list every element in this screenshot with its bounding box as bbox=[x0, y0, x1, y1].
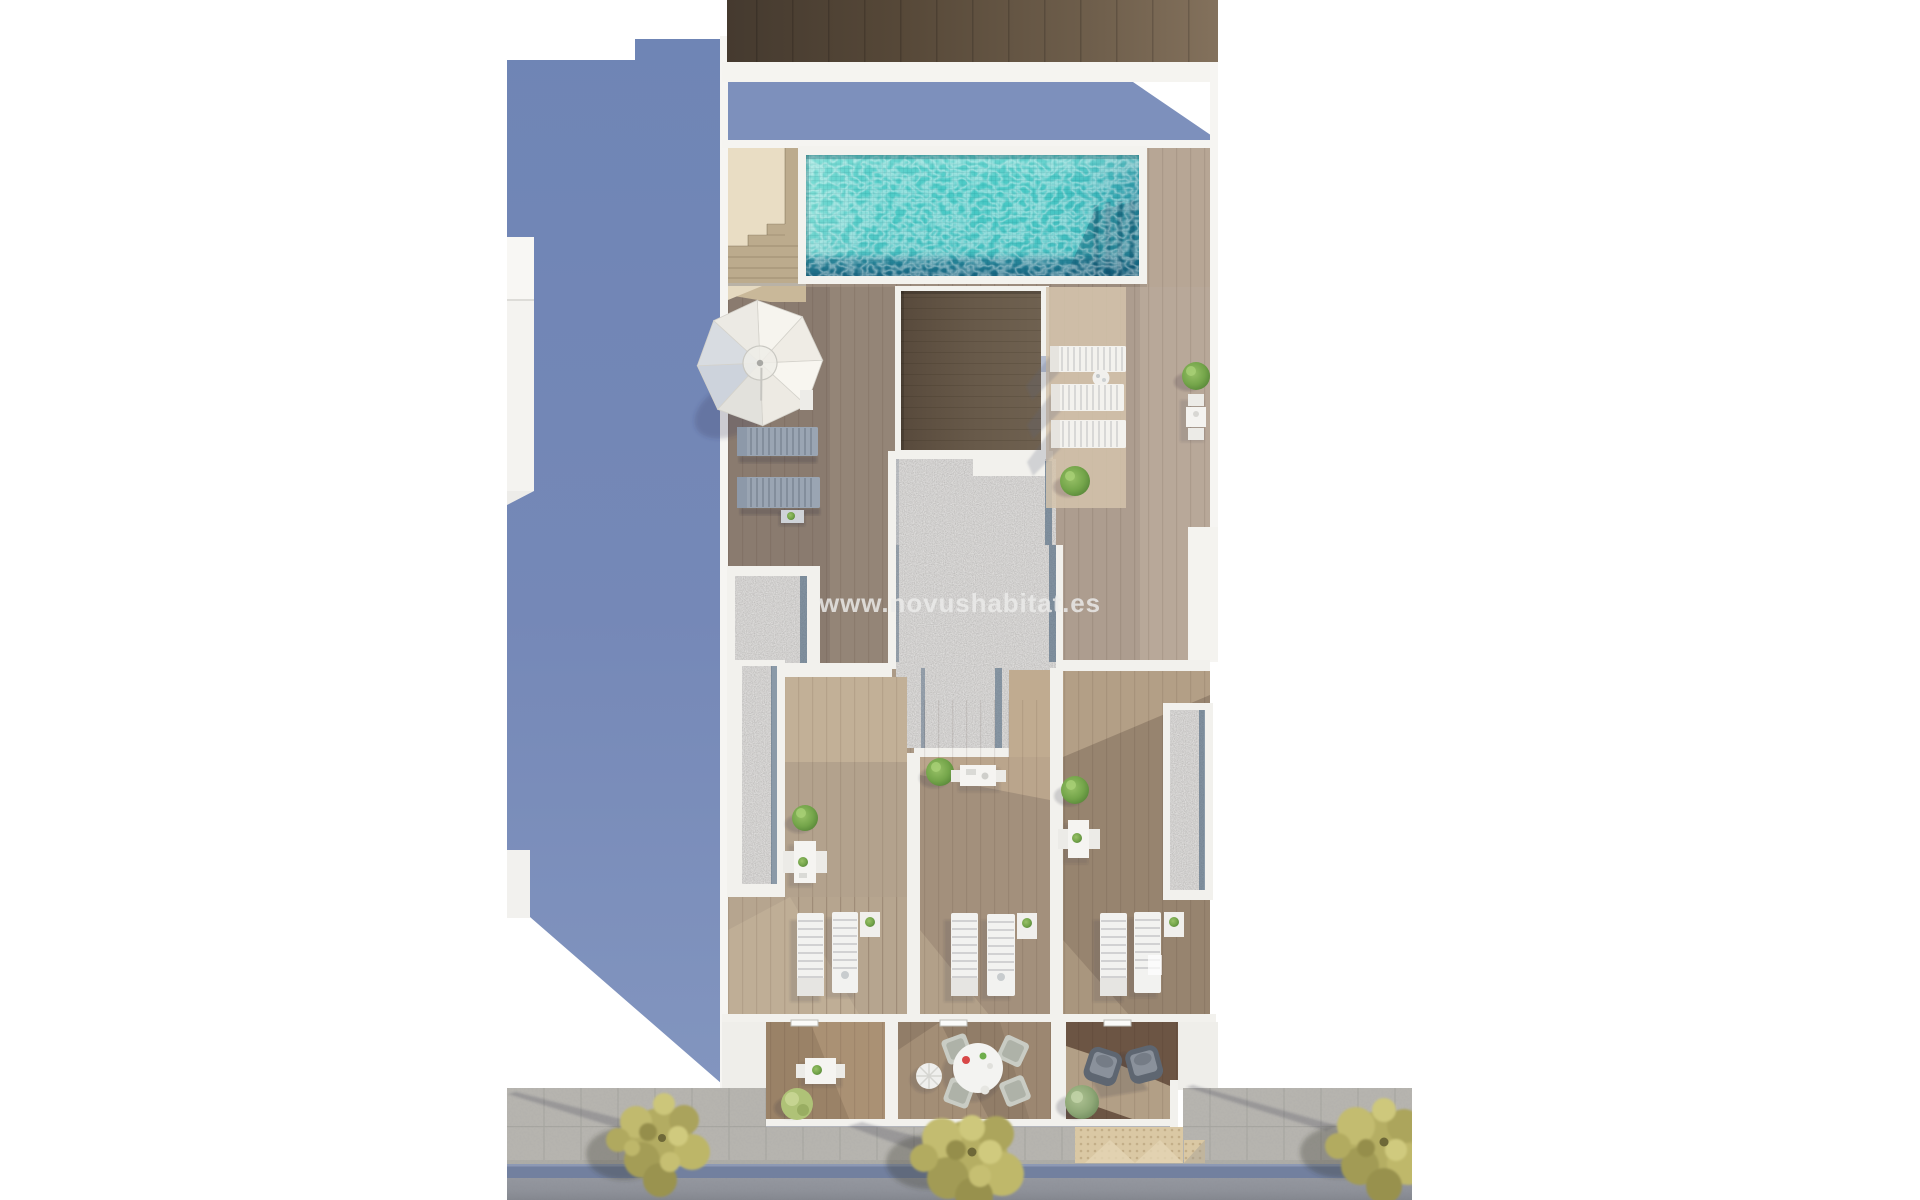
svg-text:www.novushabitat.es: www.novushabitat.es bbox=[818, 588, 1101, 618]
